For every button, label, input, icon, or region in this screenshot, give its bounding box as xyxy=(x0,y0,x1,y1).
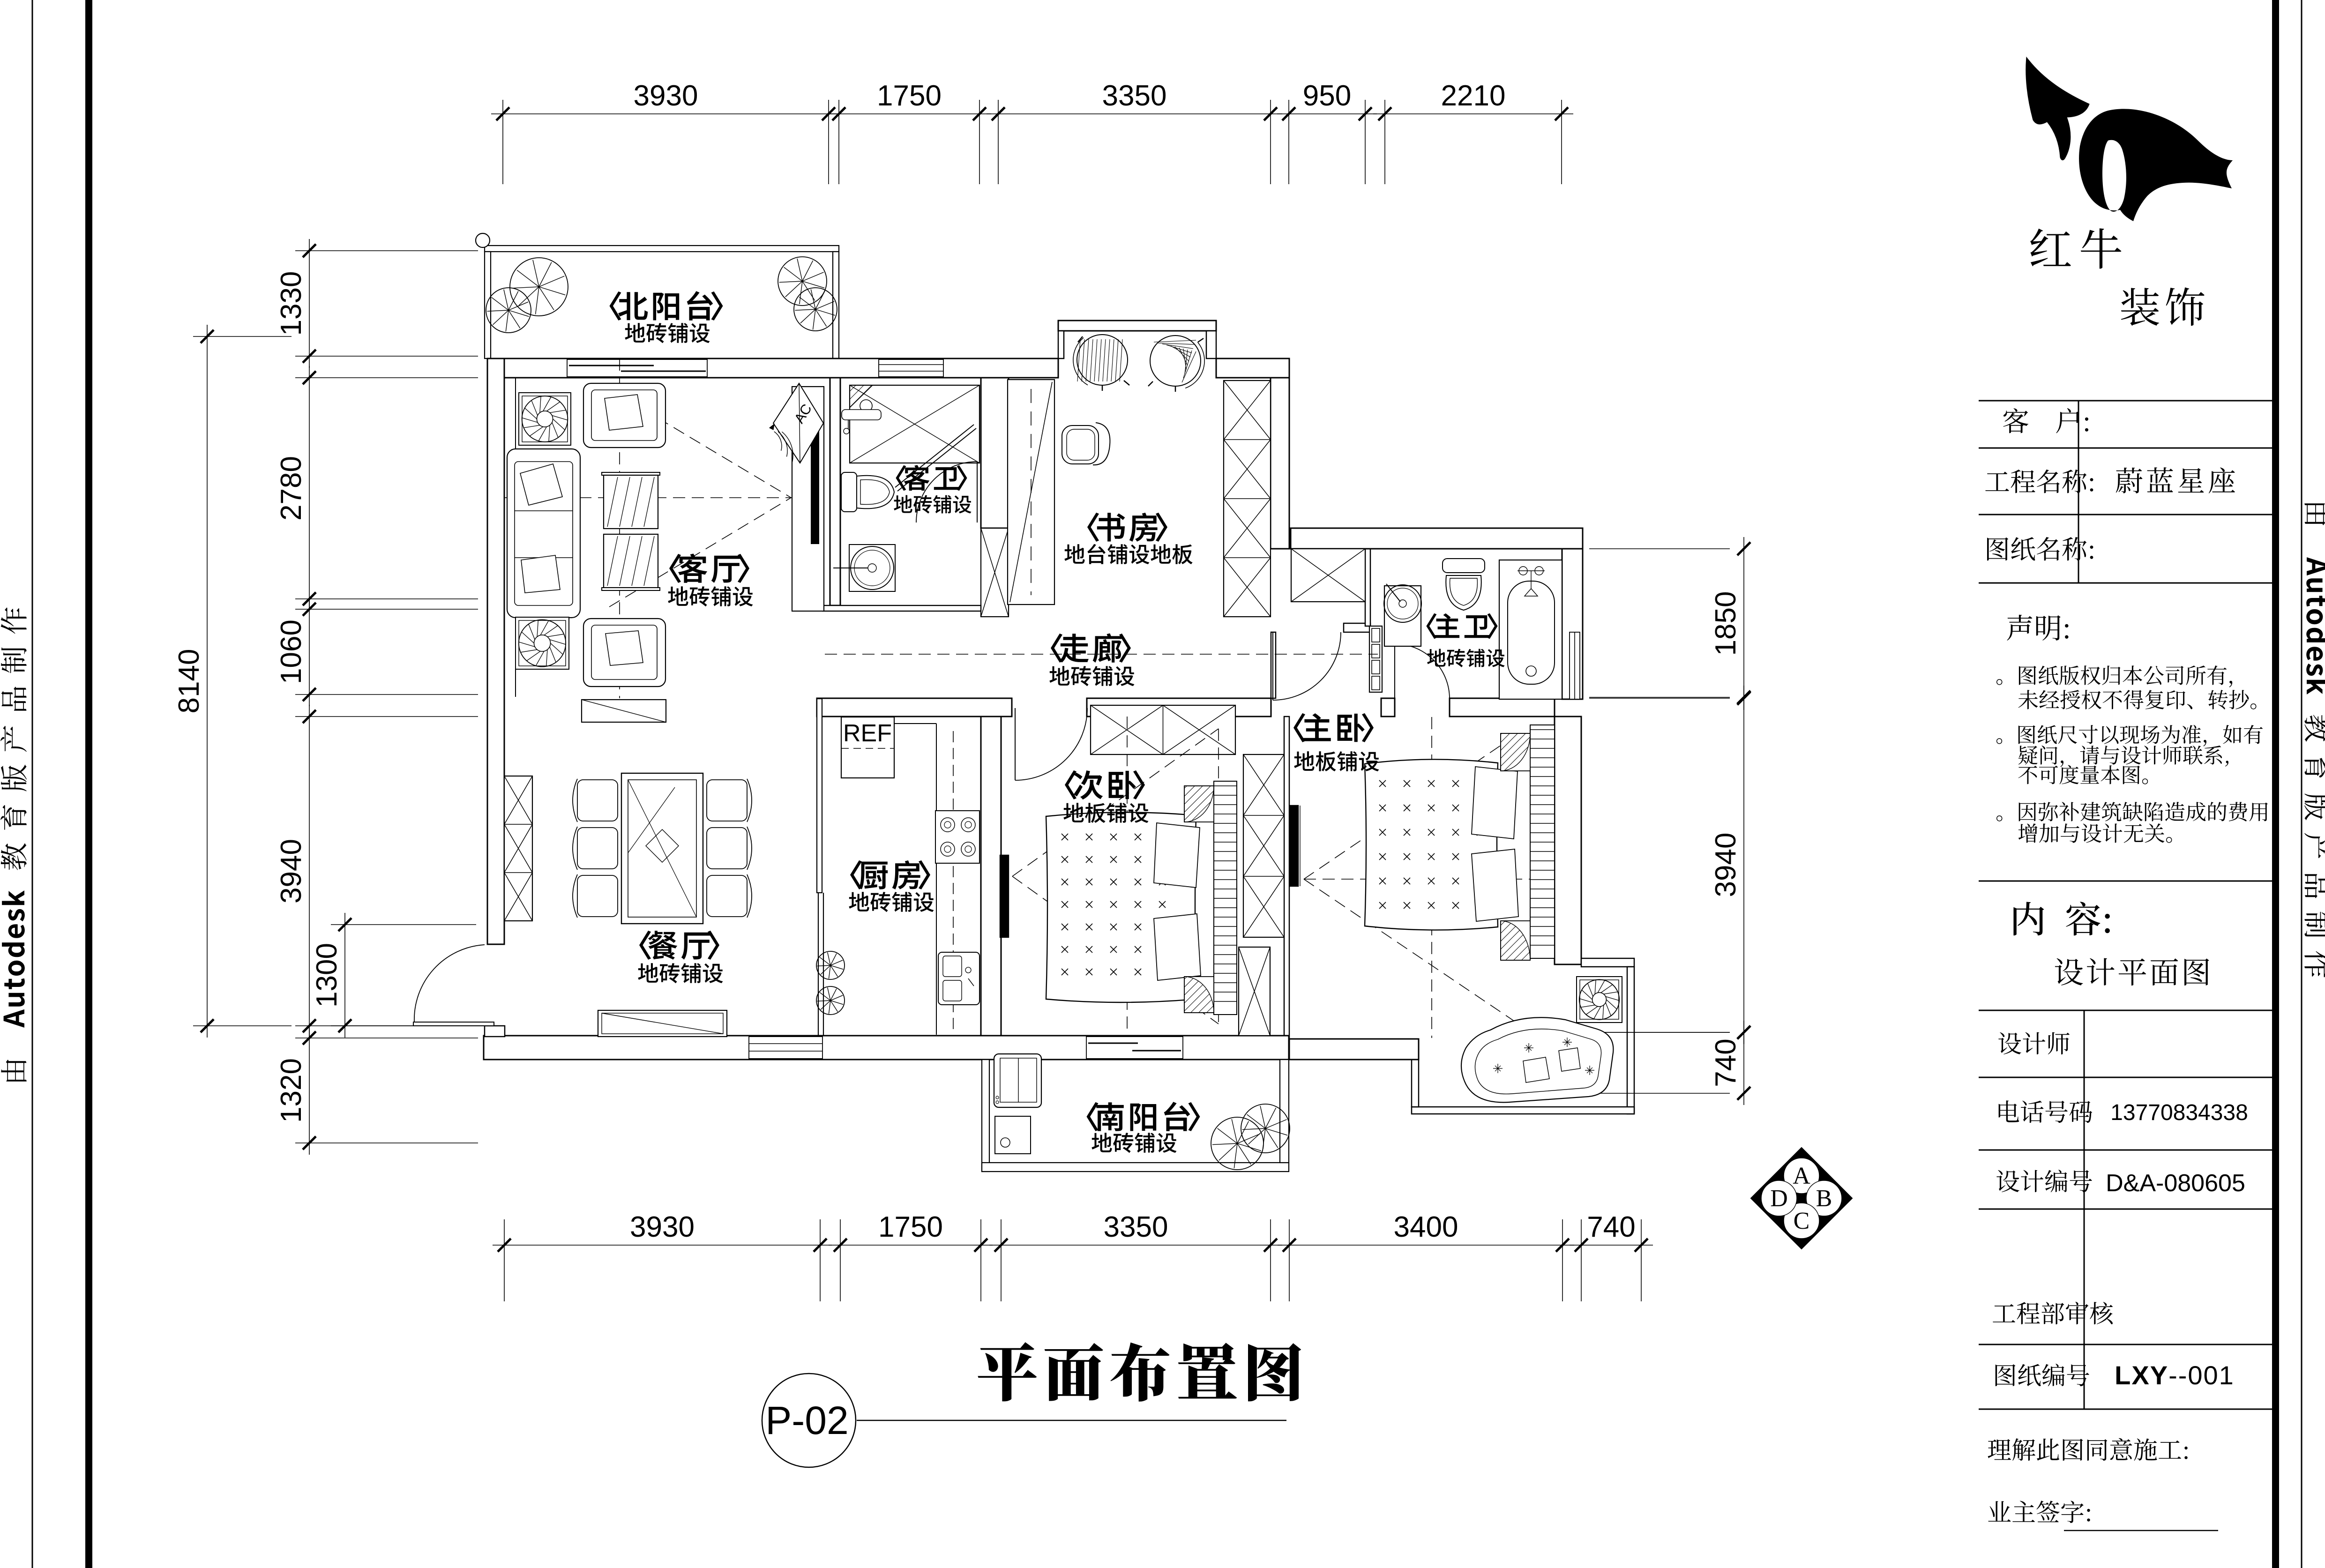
svg-text:D: D xyxy=(1770,1185,1788,1212)
svg-text:8140: 8140 xyxy=(173,649,205,714)
svg-text:REF: REF xyxy=(843,720,892,747)
svg-text:1850: 1850 xyxy=(1710,591,1742,656)
svg-text:A: A xyxy=(1793,1163,1810,1189)
svg-text:3350: 3350 xyxy=(1102,80,1167,112)
svg-text:3930: 3930 xyxy=(634,80,698,112)
svg-text:P-02: P-02 xyxy=(765,1398,848,1442)
svg-text:1320: 1320 xyxy=(275,1058,307,1123)
svg-text:LXY--001: LXY--001 xyxy=(2115,1360,2235,1390)
svg-text:1750: 1750 xyxy=(877,80,942,112)
svg-text:2210: 2210 xyxy=(1441,80,1506,112)
svg-text:1750: 1750 xyxy=(878,1211,943,1243)
svg-text:3930: 3930 xyxy=(630,1211,695,1243)
svg-text:740: 740 xyxy=(1587,1211,1635,1243)
svg-text:13770834338: 13770834338 xyxy=(2110,1100,2248,1125)
svg-text:1330: 1330 xyxy=(275,271,307,336)
svg-text:3940: 3940 xyxy=(275,839,307,903)
svg-text:2780: 2780 xyxy=(275,456,307,521)
svg-text:1300: 1300 xyxy=(311,943,343,1008)
svg-text:950: 950 xyxy=(1303,80,1351,112)
svg-text:D&A-080605: D&A-080605 xyxy=(2106,1170,2245,1197)
svg-text:1060: 1060 xyxy=(275,620,307,684)
svg-text:C: C xyxy=(1794,1208,1810,1234)
svg-text:3400: 3400 xyxy=(1394,1211,1458,1243)
svg-text:3940: 3940 xyxy=(1710,833,1742,897)
svg-text:3350: 3350 xyxy=(1104,1211,1168,1243)
svg-text:740: 740 xyxy=(1710,1038,1742,1087)
svg-text:B: B xyxy=(1816,1185,1832,1212)
